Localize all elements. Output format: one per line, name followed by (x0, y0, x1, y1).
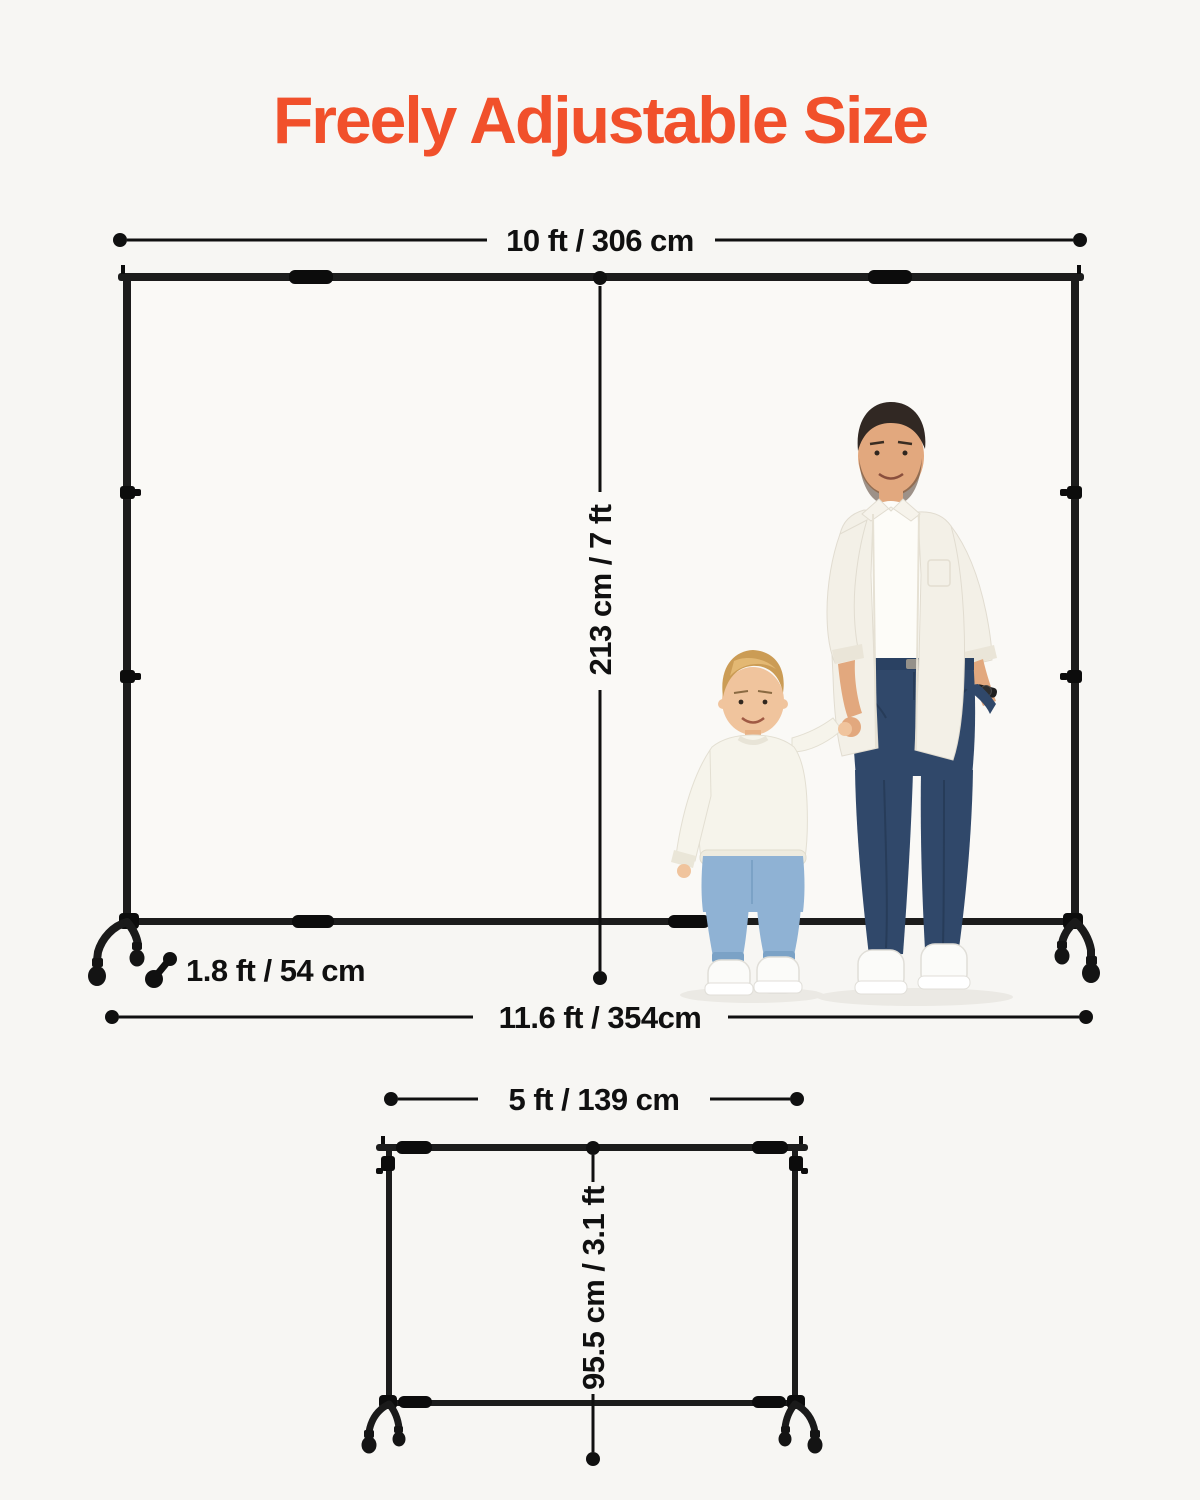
infographic-canvas: Freely Adjustable Size (0, 0, 1200, 1500)
small-width-label: 5 ft / 139 cm (509, 1082, 680, 1117)
stand-diagram: 10 ft / 306 cm 213 cm / 7 ft 1.8 ft / 54… (0, 0, 1200, 1500)
crossbar-coupler (868, 270, 912, 284)
child-hand (838, 722, 852, 736)
bottom-bar-coupler (668, 915, 710, 928)
small-height-label: 95.5 cm / 3.1 ft (576, 1186, 611, 1390)
small-left-pole (386, 1150, 392, 1406)
small-right-pole (792, 1150, 798, 1406)
left-caster-legs (88, 922, 145, 986)
crossbar-coupler (289, 270, 333, 284)
main-width-label: 10 ft / 306 cm (506, 223, 694, 258)
base-depth-label: 1.8 ft / 54 cm (186, 953, 365, 988)
base-depth-dimension: 1.8 ft / 54 cm (145, 952, 365, 988)
main-width-dimension: 10 ft / 306 cm (113, 223, 1087, 258)
small-right-caster-legs (779, 1404, 823, 1454)
large-right-pole (1071, 277, 1079, 925)
small-height-dimension: 95.5 cm / 3.1 ft (576, 1141, 611, 1466)
dumbbell-diagonal-icon (145, 952, 177, 988)
main-height-label: 213 cm / 7 ft (583, 504, 618, 675)
small-left-caster-legs (362, 1404, 406, 1454)
child-hand (677, 864, 691, 878)
right-caster-legs (1055, 922, 1101, 983)
bottom-bar-coupler (292, 915, 334, 928)
small-width-dimension: 5 ft / 139 cm (384, 1082, 804, 1117)
child-jeans (702, 856, 805, 963)
footprint-width-label: 11.6 ft / 354cm (499, 1000, 702, 1035)
large-left-pole (123, 277, 131, 925)
